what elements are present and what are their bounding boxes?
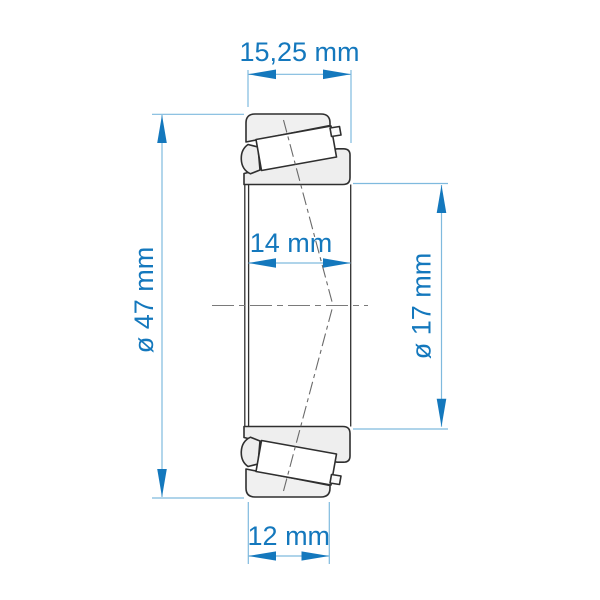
dimension-label-inner-ring-width: 14 mm	[250, 228, 333, 258]
dimension-label-outer-ring-width: 12 mm	[248, 521, 331, 551]
arrow-right-icon	[302, 551, 330, 560]
dimension-label-bore-diameter: ø 17 mm	[407, 253, 437, 360]
arrow-left-icon	[249, 258, 277, 268]
bearing-bottom-half	[241, 306, 350, 498]
arrow-left-icon	[248, 70, 276, 80]
bearing-cross-section	[212, 114, 368, 497]
arrow-up-icon	[437, 185, 447, 213]
dimension-label-outer-diameter: ø 47 mm	[129, 247, 159, 354]
arrow-down-icon	[157, 469, 167, 497]
dimension-label-total-width: 15,25 mm	[239, 37, 359, 67]
arrow-left-icon	[248, 551, 276, 560]
bearing-top-half	[241, 114, 350, 306]
cage-tab-top	[330, 127, 341, 137]
arrow-down-icon	[437, 399, 447, 427]
arrow-right-icon	[323, 70, 351, 80]
arrow-right-icon	[323, 258, 351, 268]
cage-tab-bottom	[330, 475, 341, 485]
arrow-up-icon	[157, 115, 167, 143]
dimension-inner-ring-width: 14 mm	[249, 228, 351, 268]
dimension-bore-diameter: ø 17 mm	[353, 184, 448, 430]
dimension-outer-ring-width: 12 mm	[248, 502, 331, 564]
dimension-outer-diameter: ø 47 mm	[129, 114, 244, 498]
bearing-dimension-diagram: 15,25 mm 14 mm 12 mm ø 47 mm ø 17 mm	[0, 0, 600, 600]
